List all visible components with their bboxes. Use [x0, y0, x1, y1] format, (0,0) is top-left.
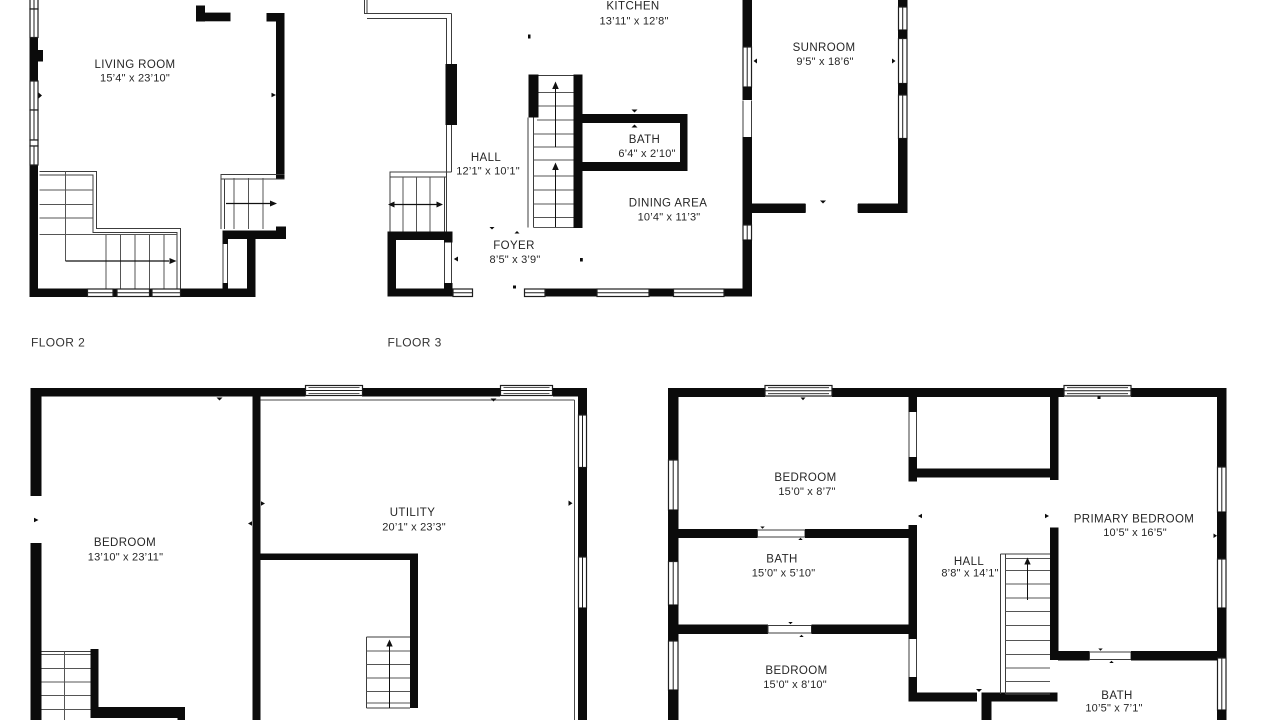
svg-text:10’4" x 11’3": 10’4" x 11’3"	[638, 212, 701, 224]
svg-text:10’5" x 16’5": 10’5" x 16’5"	[1103, 527, 1167, 539]
svg-text:DINING AREA: DINING AREA	[629, 198, 708, 210]
svg-text:15’0" x 5’10": 15’0" x 5’10"	[752, 568, 816, 580]
svg-text:BEDROOM: BEDROOM	[94, 537, 156, 549]
svg-text:15’0" x 8’10": 15’0" x 8’10"	[763, 679, 827, 691]
svg-text:SUNROOM: SUNROOM	[793, 42, 856, 54]
svg-text:10’5" x 7’1": 10’5" x 7’1"	[1085, 703, 1142, 715]
svg-text:8’8" x 14’1": 8’8" x 14’1"	[941, 568, 998, 580]
svg-text:PRIMARY BEDROOM: PRIMARY BEDROOM	[1074, 514, 1195, 526]
svg-text:KITCHEN: KITCHEN	[606, 1, 659, 13]
svg-text:BATH: BATH	[629, 134, 660, 146]
svg-text:FLOOR 3: FLOOR 3	[388, 336, 442, 350]
svg-text:BEDROOM: BEDROOM	[774, 472, 836, 484]
svg-text:HALL: HALL	[954, 556, 985, 568]
svg-text:BEDROOM: BEDROOM	[765, 665, 827, 677]
svg-text:BATH: BATH	[1101, 690, 1132, 702]
svg-text:9’5" x 18’6": 9’5" x 18’6"	[796, 56, 853, 68]
svg-text:13’11" x 12’8": 13’11" x 12’8"	[599, 16, 668, 28]
svg-text:6’4" x 2’10": 6’4" x 2’10"	[618, 148, 675, 160]
svg-text:LIVING ROOM: LIVING ROOM	[94, 59, 175, 71]
svg-text:15’0" x 8’7": 15’0" x 8’7"	[778, 486, 835, 498]
svg-text:15’4" x 23’10": 15’4" x 23’10"	[100, 73, 170, 85]
svg-text:FOYER: FOYER	[493, 240, 535, 252]
svg-text:13’10" x 23’11": 13’10" x 23’11"	[88, 552, 163, 564]
svg-text:HALL: HALL	[471, 152, 502, 164]
svg-text:8’5" x 3’9": 8’5" x 3’9"	[490, 254, 541, 266]
svg-text:UTILITY: UTILITY	[390, 507, 436, 519]
svg-text:FLOOR 2: FLOOR 2	[31, 336, 85, 350]
svg-text:12’1" x 10’1": 12’1" x 10’1"	[456, 166, 520, 178]
svg-text:BATH: BATH	[766, 554, 797, 566]
svg-text:20’1" x 23’3": 20’1" x 23’3"	[382, 522, 446, 534]
